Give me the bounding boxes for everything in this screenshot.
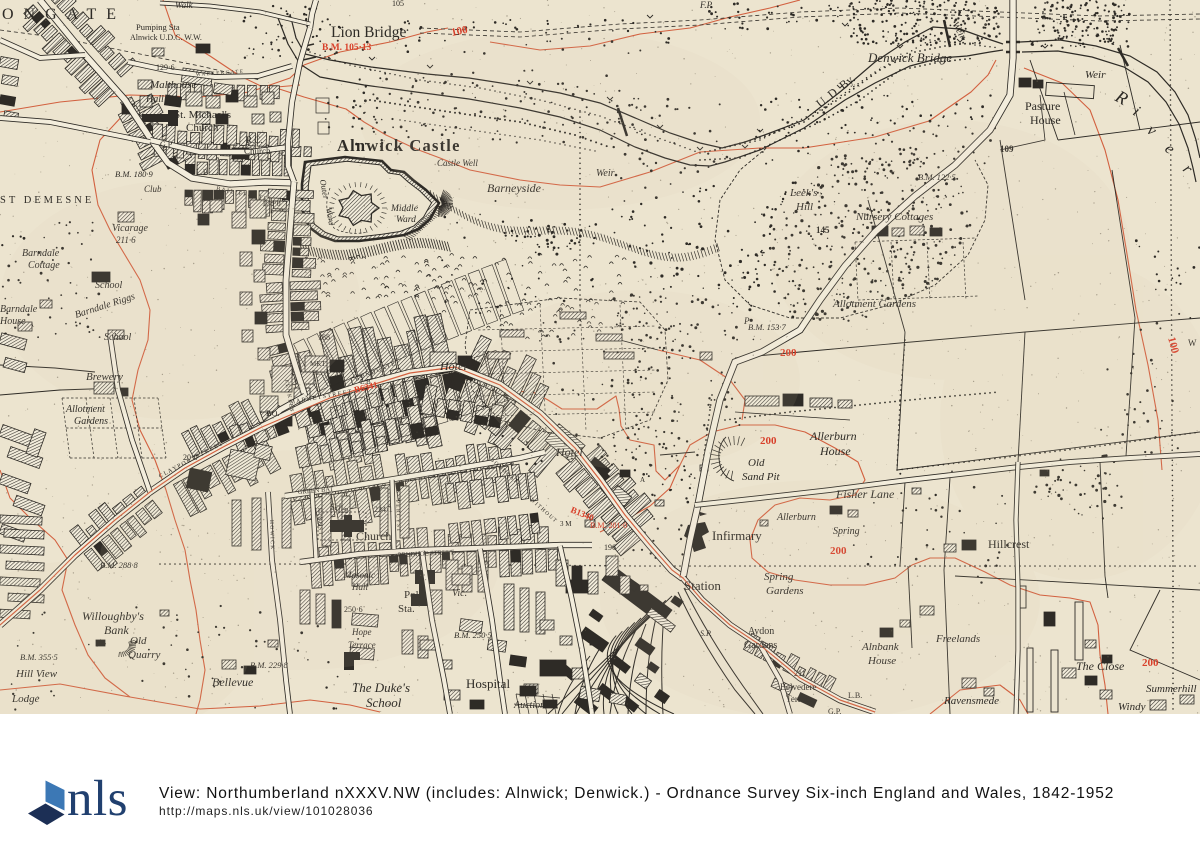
svg-text:Alnwick U.D.C. W.W.: Alnwick U.D.C. W.W. bbox=[130, 33, 202, 42]
svg-text:L.B: L.B bbox=[196, 168, 208, 177]
svg-text:196: 196 bbox=[604, 543, 616, 552]
svg-text:3 M: 3 M bbox=[560, 520, 572, 528]
svg-text:Middle: Middle bbox=[390, 204, 418, 214]
svg-text:P.O.: P.O. bbox=[266, 409, 279, 418]
svg-text:F.P.: F.P. bbox=[699, 0, 713, 10]
svg-text:Hotel: Hotel bbox=[439, 359, 467, 373]
svg-text:Allerburn: Allerburn bbox=[809, 429, 857, 443]
svg-text:Pasture: Pasture bbox=[1025, 99, 1060, 113]
svg-text:School: School bbox=[366, 695, 402, 710]
svg-text:Malthouse: Malthouse bbox=[149, 79, 197, 91]
svg-text:The Close: The Close bbox=[1076, 659, 1125, 673]
svg-text:ONGATE: ONGATE bbox=[2, 6, 126, 23]
svg-text:House: House bbox=[1030, 113, 1061, 127]
svg-text:St. Michael's: St. Michael's bbox=[174, 109, 231, 121]
svg-text:105: 105 bbox=[392, 0, 404, 8]
svg-text:Walk: Walk bbox=[175, 0, 194, 10]
svg-text:Denwick Bridge: Denwick Bridge bbox=[867, 50, 952, 65]
svg-text:129·6: 129·6 bbox=[156, 63, 175, 72]
svg-text:A: A bbox=[640, 476, 645, 484]
svg-text:Hall: Hall bbox=[145, 94, 164, 105]
svg-text:Hospital: Hospital bbox=[466, 676, 510, 691]
svg-text:200: 200 bbox=[1142, 657, 1159, 669]
svg-text:Pumping Sta: Pumping Sta bbox=[136, 22, 180, 32]
svg-text:Church: Church bbox=[186, 122, 219, 134]
svg-text:Ward: Ward bbox=[396, 215, 416, 225]
svg-text:Lion Bridge: Lion Bridge bbox=[331, 24, 406, 41]
svg-text:B.M. 105·13: B.M. 105·13 bbox=[322, 43, 372, 53]
svg-text:B.M. 201·0: B.M. 201·0 bbox=[590, 521, 627, 530]
svg-text:Old: Old bbox=[748, 457, 765, 469]
svg-text:G.P: G.P bbox=[160, 140, 173, 149]
svg-text:Gardens: Gardens bbox=[74, 416, 108, 427]
svg-text:Auction: Auction bbox=[513, 700, 545, 711]
svg-text:House: House bbox=[819, 444, 851, 458]
svg-text:The Duke's: The Duke's bbox=[352, 680, 410, 695]
svg-text:B.M. 180·9: B.M. 180·9 bbox=[115, 169, 154, 179]
svg-text:B.M. 250·5: B.M. 250·5 bbox=[454, 630, 492, 640]
svg-text:Windy: Windy bbox=[1118, 701, 1146, 713]
svg-text:Weir: Weir bbox=[1085, 69, 1106, 81]
svg-text:Church: Church bbox=[244, 146, 271, 156]
svg-text:Sand Pit: Sand Pit bbox=[742, 471, 781, 483]
svg-text:Ravensmede: Ravensmede bbox=[943, 695, 999, 707]
svg-text:R.C.: R.C. bbox=[246, 135, 263, 145]
svg-text:Summerhill: Summerhill bbox=[1146, 683, 1197, 695]
